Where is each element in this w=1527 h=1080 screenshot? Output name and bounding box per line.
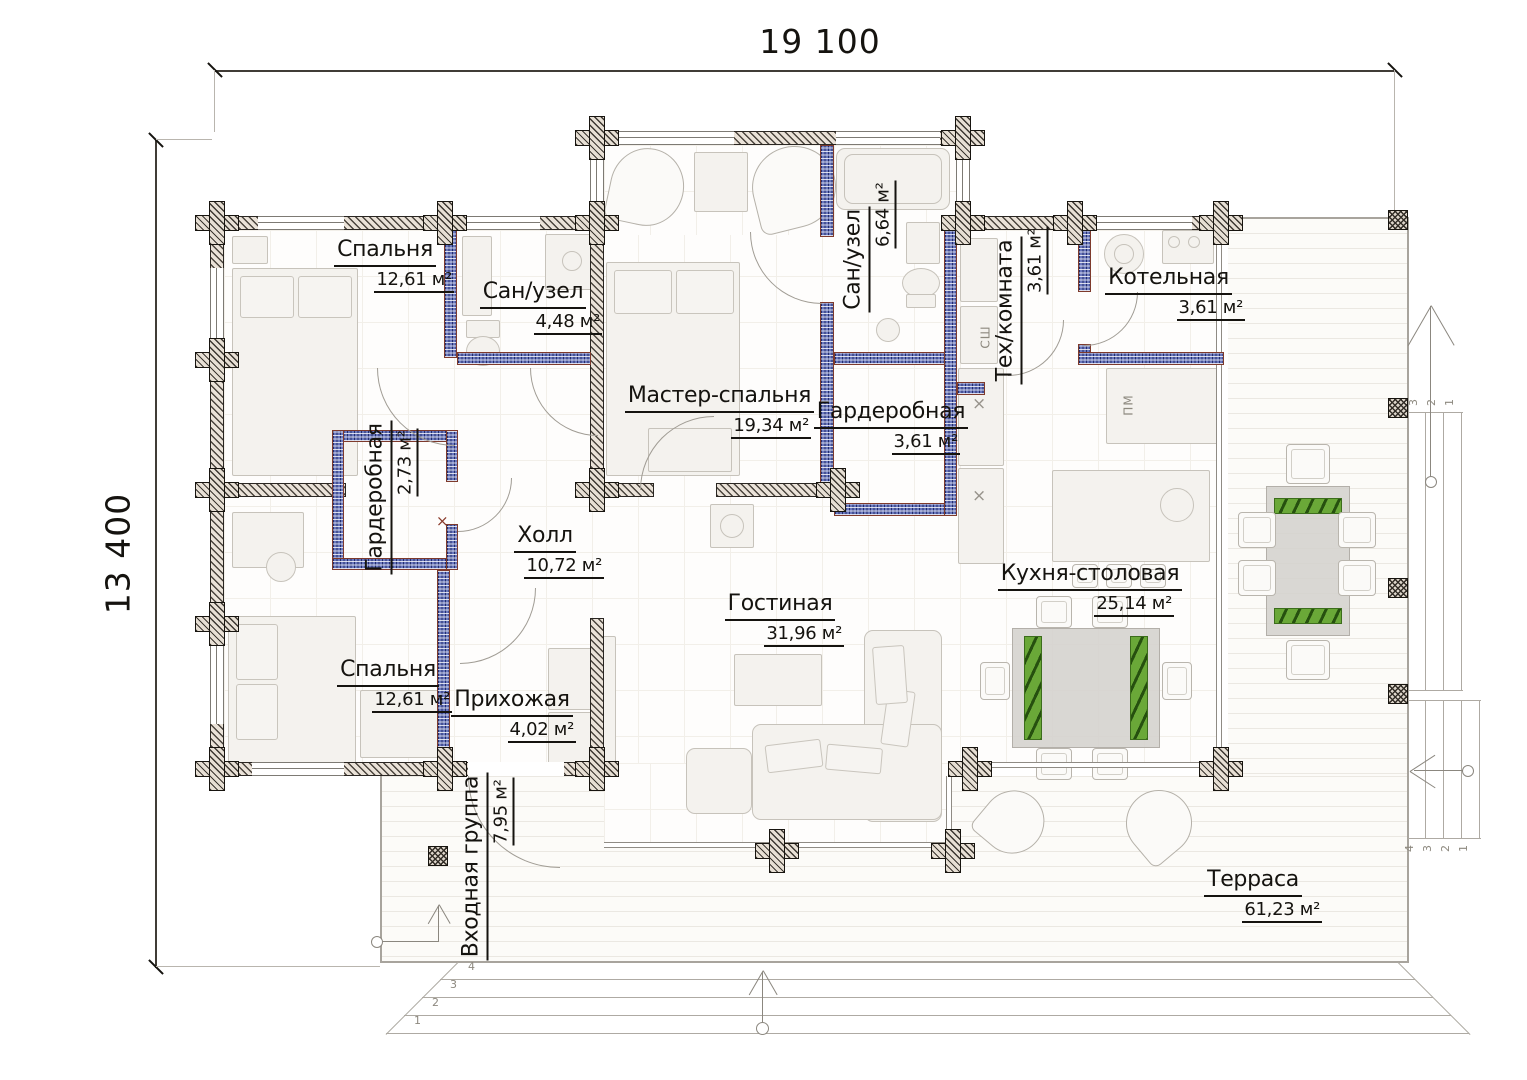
partition-wall xyxy=(446,524,458,570)
terrace-chair xyxy=(1338,512,1376,548)
stair-arrow-origin xyxy=(1425,476,1437,488)
kitchen-counter xyxy=(958,468,1004,564)
terrace-post xyxy=(1388,684,1408,704)
step-line xyxy=(1443,413,1444,690)
stair-arrow-head xyxy=(762,970,777,995)
terrace-post xyxy=(1388,578,1408,598)
step-line xyxy=(1461,413,1462,690)
sofa-cushion xyxy=(825,744,883,775)
terrace-edge xyxy=(1228,217,1408,219)
partition-wall xyxy=(457,352,591,365)
step-number: 2 xyxy=(1425,399,1438,406)
sink xyxy=(906,222,940,264)
log-joint xyxy=(941,116,985,160)
step-number: 3 xyxy=(450,978,457,991)
dimension-height-label: 13 400 xyxy=(99,454,138,654)
room-label-kitchen-dining: Кухня-столовая 25,14 м² xyxy=(990,560,1190,617)
pillow xyxy=(240,276,294,318)
room-label-bathroom-2: Сан/узел 6,64 м² xyxy=(840,164,897,354)
step-line xyxy=(1443,700,1444,838)
pillow xyxy=(676,270,734,314)
stair-arrow-origin xyxy=(1462,765,1474,777)
pillow xyxy=(236,624,278,680)
stair-arrow-origin xyxy=(756,1022,769,1035)
dimension-extension xyxy=(214,70,215,132)
stair-arrow xyxy=(1430,306,1431,478)
terrace-post xyxy=(1388,210,1408,230)
interior-log-wall xyxy=(590,230,604,490)
side-table xyxy=(694,152,748,212)
stair-arrow xyxy=(762,972,763,1024)
step-line xyxy=(1425,700,1426,838)
step-line xyxy=(1408,690,1463,691)
island-sink xyxy=(1160,488,1194,522)
log-joint xyxy=(575,468,619,512)
entrance-arrow xyxy=(438,906,439,942)
table-runner xyxy=(1274,608,1342,624)
step-line xyxy=(1479,700,1480,838)
step-number: 2 xyxy=(432,996,439,1009)
toilet xyxy=(906,294,936,308)
step-line xyxy=(1408,838,1481,839)
window xyxy=(258,216,344,230)
window xyxy=(612,131,734,145)
step-number: 2 xyxy=(1439,845,1452,852)
step-number: 1 xyxy=(1457,845,1470,852)
sofa xyxy=(752,724,942,820)
window xyxy=(464,216,540,230)
step-number: 1 xyxy=(414,1014,421,1027)
terrace-post xyxy=(428,846,448,866)
stair-arrow-head xyxy=(1410,771,1436,789)
room-label-tech-room: Тех/комната 3,61 м² xyxy=(992,210,1049,410)
terrace-chair xyxy=(1286,444,1330,484)
ottoman xyxy=(686,748,752,814)
room-label-hall: Холл 10,72 м² xyxy=(470,522,620,579)
boiler-inner xyxy=(1114,244,1134,264)
sofa-cushion xyxy=(872,645,908,705)
entrance-arrow xyxy=(383,941,439,942)
step-line xyxy=(440,979,1415,980)
window xyxy=(836,131,940,145)
table-runner xyxy=(1130,636,1148,740)
log-joint xyxy=(575,116,619,160)
partition-wall xyxy=(820,145,834,237)
drying-cabinet-label: СШ xyxy=(979,325,993,348)
table-runner xyxy=(1274,498,1342,514)
dining-chair xyxy=(980,662,1010,700)
log-joint xyxy=(948,747,992,791)
step-line xyxy=(386,1033,1469,1034)
step-miter xyxy=(386,962,459,1035)
room-label-boiler-room: Котельная 3,61 м² xyxy=(1076,264,1261,321)
stair-arrow-head xyxy=(1430,305,1454,346)
room-label-living-room: Гостиная 31,96 м² xyxy=(700,590,860,647)
step-miter xyxy=(1398,962,1471,1035)
stair-arrow-head xyxy=(1407,305,1431,346)
counter-mark: × xyxy=(972,486,986,506)
dimension-extension xyxy=(156,139,212,140)
step-number: 3 xyxy=(1421,845,1434,852)
dimension-line-left xyxy=(155,140,157,968)
log-joint xyxy=(575,201,619,245)
log-joint xyxy=(195,338,239,382)
entrance-arrow-origin xyxy=(371,936,383,948)
window xyxy=(210,268,224,348)
log-joint xyxy=(195,747,239,791)
log-joint xyxy=(575,747,619,791)
terrace-chair xyxy=(1238,512,1276,548)
dimension-extension xyxy=(1394,70,1395,215)
dining-chair xyxy=(1162,662,1192,700)
log-joint xyxy=(931,829,975,873)
step-number: 3 xyxy=(1407,399,1420,406)
step-number: 1 xyxy=(1443,399,1456,406)
log-joint xyxy=(941,201,985,245)
terrace-chair xyxy=(1286,640,1330,680)
step-line xyxy=(1408,700,1481,701)
step-line xyxy=(404,1015,1451,1016)
partition-wall xyxy=(332,430,344,570)
log-joint xyxy=(1199,747,1243,791)
log-joint xyxy=(195,468,239,512)
log-joint xyxy=(195,602,239,646)
terrace-edge xyxy=(380,961,1408,963)
coffee-table xyxy=(734,654,822,706)
log-joint xyxy=(816,468,860,512)
room-label-wardrobe-1: Гардеробная 3,61 м² xyxy=(806,398,976,455)
log-joint xyxy=(755,829,799,873)
room-label-wardrobe-2: Гардеробная 2,73 м² xyxy=(362,412,419,582)
shower-drain xyxy=(562,251,582,271)
fireplace-inner xyxy=(720,514,744,538)
glazed-wall xyxy=(972,762,1220,768)
pillow xyxy=(614,270,672,314)
room-label-entry-hall: Прихожая 4,02 м² xyxy=(432,686,592,743)
step-line xyxy=(422,997,1433,998)
partition-wall xyxy=(944,230,957,516)
room-label-master-bedroom: Мастер-спальня 19,34 м² xyxy=(612,382,827,439)
room-label-bathroom-1: Сан/узел 4,48 м² xyxy=(448,278,618,335)
table-runner xyxy=(1024,636,1042,740)
partition-wall xyxy=(1078,352,1224,365)
step-line xyxy=(1408,412,1463,413)
room-label-terrace: Терраса 61,23 м² xyxy=(1168,866,1338,923)
room-label-bedroom-1: Спальня 12,61 м² xyxy=(300,236,470,293)
floor-plan: 19 100 13 400 1 2 3 4 3 2 1 4 3 2 1 xyxy=(0,0,1527,1080)
dimension-width-label: 19 100 xyxy=(720,22,920,61)
window xyxy=(1096,216,1192,230)
pillow xyxy=(236,684,278,740)
stair-arrow xyxy=(1414,770,1464,771)
dimension-extension xyxy=(156,966,380,967)
log-joint xyxy=(1053,201,1097,245)
log-joint xyxy=(1199,201,1243,245)
terrace-edge xyxy=(380,776,382,962)
dimension-line-top xyxy=(215,70,1395,72)
terrace-chair xyxy=(1338,560,1376,596)
log-joint xyxy=(195,201,239,245)
partition-wall xyxy=(957,382,985,395)
door-mark: × xyxy=(436,512,449,530)
stove-burner xyxy=(1168,236,1180,248)
terrace-post xyxy=(1388,398,1408,418)
room-label-entrance-group: Входная группа 7,95 м² xyxy=(458,761,515,971)
dishwasher-label: ПМ xyxy=(1122,394,1136,415)
desk-chair xyxy=(266,552,296,582)
step-number: 4 xyxy=(1403,845,1416,852)
window xyxy=(210,644,224,724)
terrace-chair xyxy=(1238,560,1276,596)
step-line xyxy=(1425,413,1426,690)
window xyxy=(252,762,344,776)
